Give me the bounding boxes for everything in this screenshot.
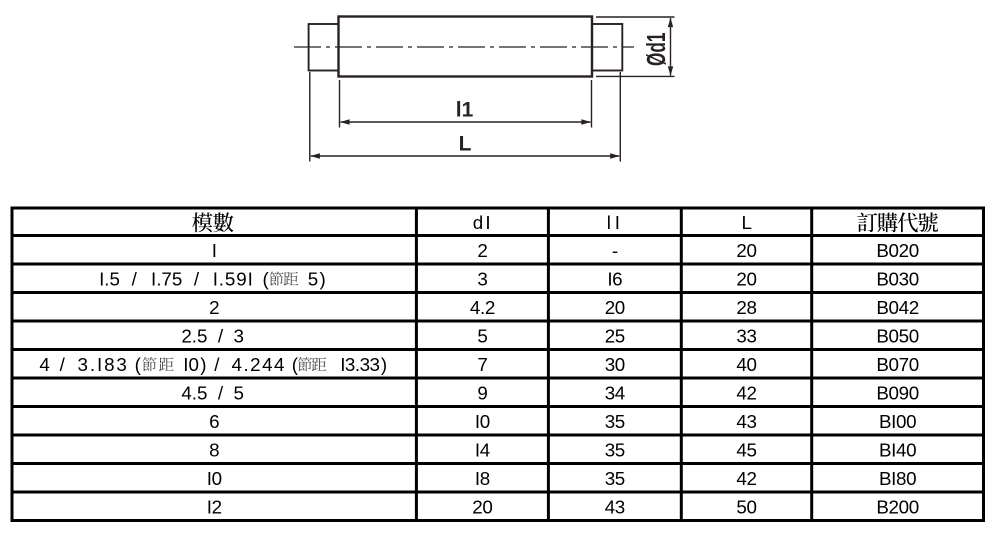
svg-text:2: 2 (477, 240, 487, 261)
svg-text:5: 5 (308, 269, 318, 290)
svg-text:2.5 / 3: 2.5 / 3 (181, 326, 244, 347)
svg-text:(: ( (135, 354, 142, 375)
svg-text:42: 42 (736, 468, 756, 489)
svg-text:30: 30 (605, 354, 625, 375)
svg-text:dI: dI (473, 212, 493, 233)
svg-text:): ) (200, 354, 206, 375)
svg-text:I.75: I.75 (151, 269, 182, 290)
svg-text:28: 28 (736, 297, 756, 318)
svg-text:50: 50 (736, 497, 756, 518)
svg-text:20: 20 (736, 269, 756, 290)
svg-text:l1: l1 (456, 99, 474, 122)
svg-text:/: / (132, 269, 138, 290)
svg-text:4.244: 4.244 (232, 354, 287, 375)
svg-text:8: 8 (209, 440, 219, 461)
svg-text:20: 20 (472, 497, 492, 518)
svg-text:20: 20 (605, 297, 625, 318)
svg-text:3: 3 (477, 269, 487, 290)
svg-text:BI80: BI80 (879, 468, 916, 489)
svg-text:9: 9 (477, 383, 487, 404)
svg-text:43: 43 (736, 411, 756, 432)
svg-text:6: 6 (209, 411, 219, 432)
svg-text:I4: I4 (475, 440, 490, 461)
svg-text:B030: B030 (876, 269, 918, 290)
svg-text:/: / (60, 354, 66, 375)
svg-text:3.I83: 3.I83 (78, 354, 129, 375)
svg-text:2: 2 (209, 297, 219, 318)
svg-text:I3.33: I3.33 (340, 354, 379, 375)
svg-text:35: 35 (605, 411, 625, 432)
svg-text:35: 35 (605, 440, 625, 461)
svg-text:4.2: 4.2 (470, 297, 495, 318)
svg-text:B070: B070 (876, 354, 918, 375)
svg-text:4: 4 (39, 354, 49, 375)
svg-text:I0: I0 (475, 411, 490, 432)
svg-text:-: - (612, 240, 618, 261)
svg-text:5: 5 (477, 326, 487, 347)
svg-text:I0: I0 (207, 468, 222, 489)
svg-text:/: / (214, 354, 220, 375)
svg-text:45: 45 (736, 440, 756, 461)
svg-text:7: 7 (477, 354, 487, 375)
svg-text:42: 42 (736, 383, 756, 404)
svg-text:B200: B200 (876, 497, 918, 518)
svg-text:I.59I: I.59I (213, 269, 254, 290)
svg-text:4.5 / 5: 4.5 / 5 (181, 383, 244, 404)
svg-text:B042: B042 (876, 297, 918, 318)
svg-text:BI00: BI00 (879, 411, 916, 432)
svg-text:35: 35 (605, 468, 625, 489)
svg-text:I0: I0 (183, 354, 199, 375)
svg-text:BI40: BI40 (879, 440, 916, 461)
svg-text:): ) (320, 269, 326, 290)
svg-text:Ød1: Ød1 (641, 33, 670, 66)
svg-text:L: L (459, 133, 472, 156)
svg-text:B020: B020 (876, 240, 918, 261)
svg-text:20: 20 (736, 240, 756, 261)
svg-text:I6: I6 (607, 269, 622, 290)
svg-text:B090: B090 (876, 383, 918, 404)
svg-text:I.5: I.5 (99, 269, 120, 290)
svg-text:40: 40 (736, 354, 756, 375)
svg-text:I: I (212, 240, 217, 261)
svg-text:34: 34 (605, 383, 625, 404)
svg-text:25: 25 (605, 326, 625, 347)
svg-text:(: ( (292, 354, 299, 375)
svg-text:B050: B050 (876, 326, 918, 347)
svg-text:33: 33 (736, 326, 756, 347)
svg-text:L: L (741, 212, 751, 233)
svg-text:I2: I2 (207, 497, 222, 518)
svg-text:(: ( (263, 269, 270, 290)
svg-text:): ) (381, 354, 387, 375)
svg-text:I8: I8 (475, 468, 490, 489)
svg-text:lI: lI (607, 212, 624, 233)
svg-text:43: 43 (605, 497, 625, 518)
svg-text:/: / (194, 269, 200, 290)
